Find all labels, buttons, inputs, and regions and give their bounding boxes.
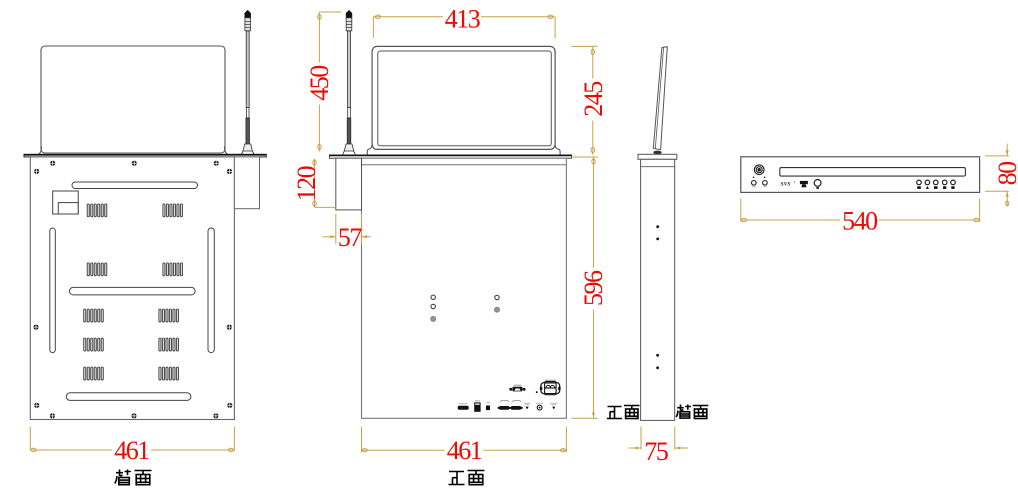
svg-text:80: 80: [993, 161, 1018, 186]
svg-text:450: 450: [305, 65, 334, 101]
svg-text:245: 245: [579, 82, 608, 117]
svg-text:120: 120: [292, 165, 321, 201]
svg-text:461: 461: [114, 436, 149, 465]
svg-text:75: 75: [644, 437, 668, 466]
svg-text:596: 596: [579, 270, 608, 306]
svg-text:SVS: SVS: [781, 182, 791, 188]
svg-text:57: 57: [338, 223, 363, 252]
svg-text:413: 413: [445, 4, 480, 33]
svg-text:461: 461: [447, 436, 482, 465]
svg-text:540: 540: [842, 207, 878, 236]
